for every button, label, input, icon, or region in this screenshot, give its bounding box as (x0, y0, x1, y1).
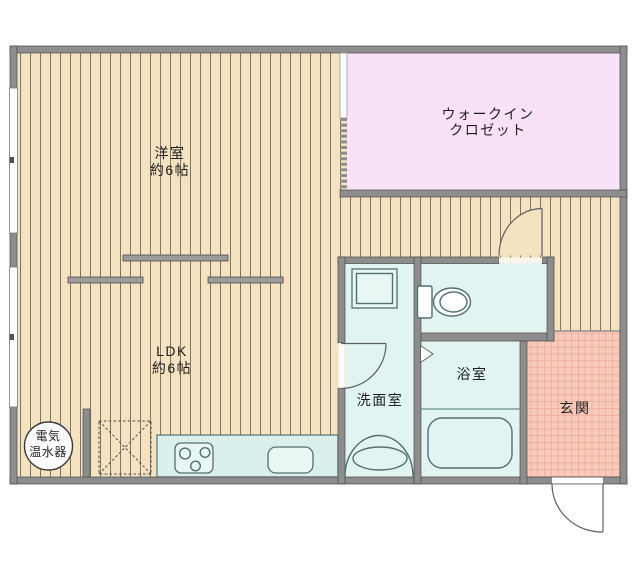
western-room-label: 洋室 (155, 145, 186, 161)
wall-closet-bottom (340, 190, 627, 197)
toilet-tank (418, 286, 433, 318)
floorplan-canvas: 洋室 約6帖 ウォークイン クロゼット LDK 約6帖 洗面室 浴室 玄関 電気… (0, 0, 640, 583)
partition-bar (68, 277, 143, 283)
door-swing-icon (552, 484, 603, 532)
wall-kitchen-stub (83, 409, 90, 477)
walk-in-closet-label-line1: ウォークイン (442, 106, 535, 122)
floorplan-svg: 洋室 約6帖 ウォークイン クロゼット LDK 約6帖 洗面室 浴室 玄関 電気… (0, 0, 640, 583)
window-center-tick (10, 334, 15, 340)
stove-icon (175, 443, 213, 473)
water-heater-label-line2: 温水器 (29, 445, 67, 459)
pan-outer (352, 269, 397, 308)
bathroom-label: 浴室 (457, 366, 488, 382)
window-center-tick (10, 157, 15, 163)
wall-right (620, 46, 627, 484)
wall-entrance-left (520, 341, 527, 484)
wall-bottom (10, 477, 627, 484)
wall-toilet-bottom (421, 333, 554, 341)
corridor-door-gap (499, 258, 542, 264)
washing-machine-pan-icon (352, 269, 397, 308)
ldk-label: LDK (156, 343, 188, 359)
wall-washroom-left-lower (338, 388, 345, 484)
water-heater-label-line1: 電気 (35, 428, 60, 443)
walk-in-closet-label-line2: クロゼット (449, 122, 527, 138)
kitchen-sink-icon (268, 447, 313, 473)
partition-bar (208, 277, 283, 283)
partition-bar (123, 255, 228, 261)
closet-opening (340, 53, 347, 118)
wall-washroom-left-upper (338, 257, 345, 343)
washroom-label: 洗面室 (357, 392, 404, 408)
western-room-size: 約6帖 (150, 162, 190, 178)
toilet-icon (418, 286, 471, 318)
entrance-label: 玄関 (560, 400, 591, 416)
wall-top (10, 46, 627, 53)
wall-toilet-right (547, 257, 554, 341)
entry-door-gap (552, 478, 603, 484)
washroom-door-gap (339, 343, 345, 388)
stove-body (175, 443, 213, 473)
ldk-size: 約6帖 (152, 360, 192, 376)
